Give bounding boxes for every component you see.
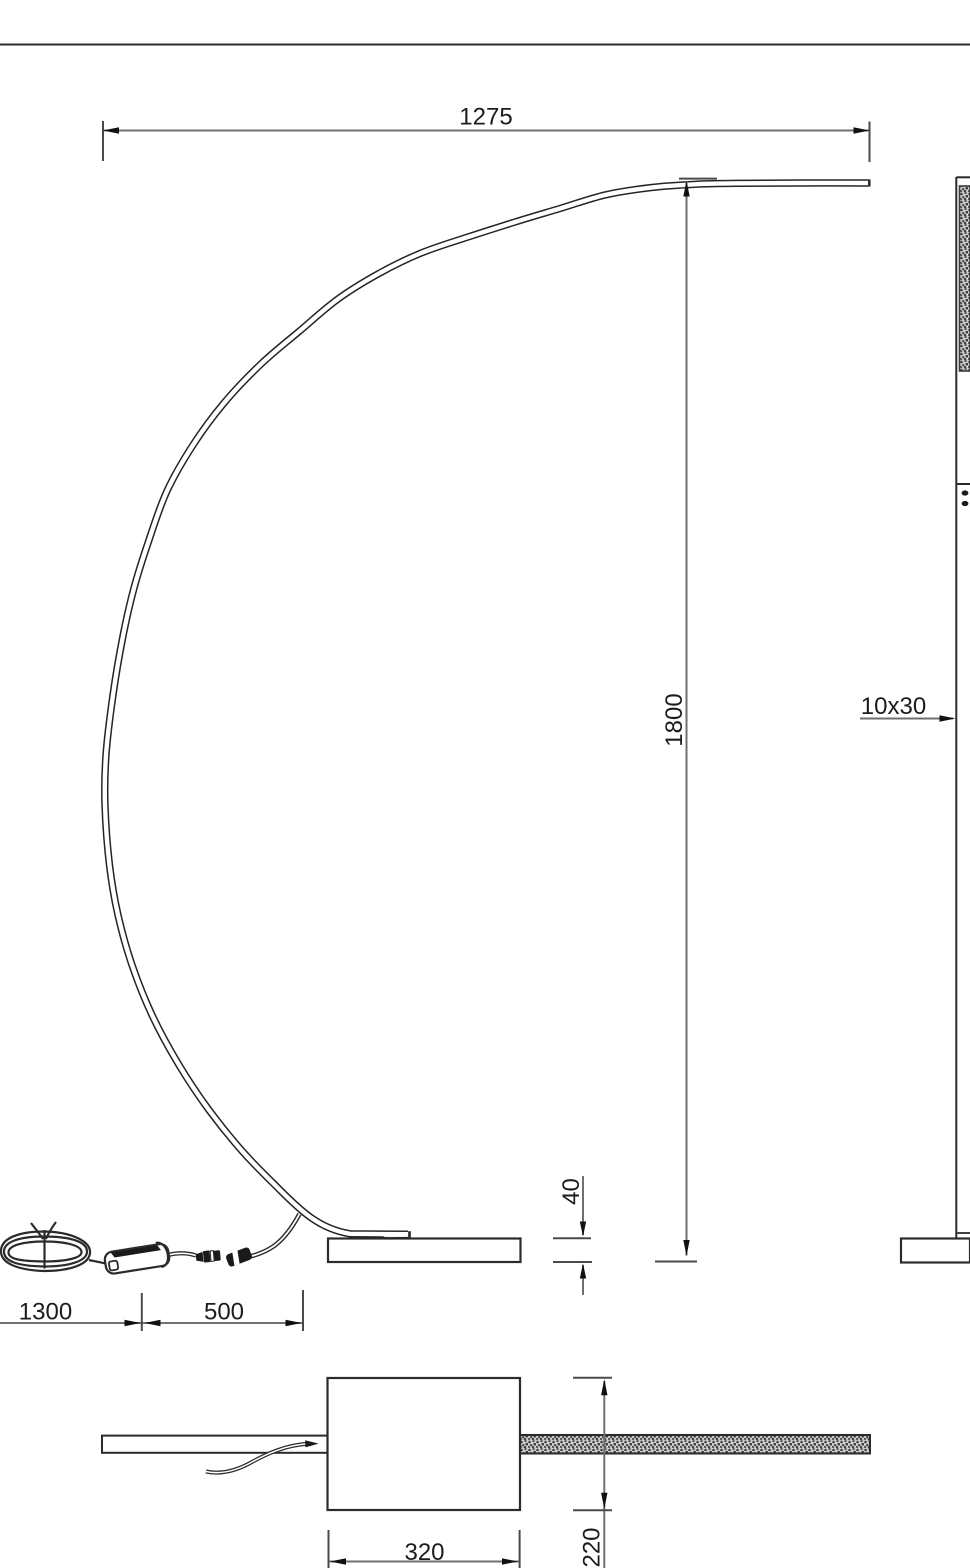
svg-text:10x30: 10x30 — [861, 693, 926, 720]
svg-text:40: 40 — [558, 1178, 585, 1205]
svg-text:1800: 1800 — [661, 693, 688, 746]
svg-text:1300: 1300 — [19, 1299, 72, 1326]
svg-text:500: 500 — [204, 1299, 244, 1326]
svg-text:1275: 1275 — [459, 104, 512, 131]
svg-text:220: 220 — [579, 1527, 606, 1567]
svg-text:320: 320 — [404, 1539, 444, 1566]
